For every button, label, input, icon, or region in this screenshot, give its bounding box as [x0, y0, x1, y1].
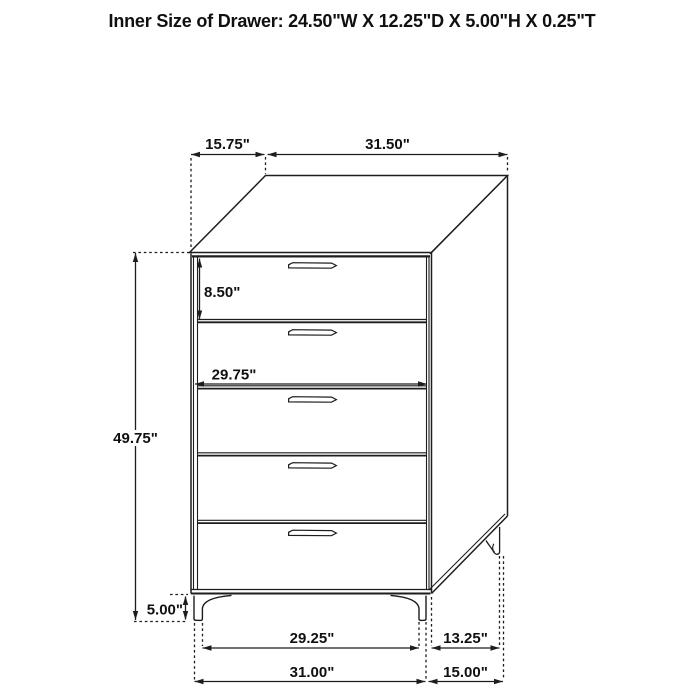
arrowhead	[183, 611, 188, 620]
arrowhead	[417, 679, 426, 684]
arrowhead	[195, 679, 204, 684]
drawer-dividers	[198, 320, 427, 524]
chest-top-face	[190, 176, 508, 253]
extension-lines	[133, 157, 508, 680]
dimension-leg-height: 5.00"	[147, 596, 189, 620]
arrowhead	[499, 152, 508, 157]
dimension-side-legs-span: 13.25"	[432, 630, 500, 651]
front-left-leg	[194, 595, 232, 620]
arrowhead	[183, 596, 188, 605]
arrowhead	[268, 152, 277, 157]
dim-label-overall-height: 49.75"	[113, 430, 158, 447]
dimension-base-side-depth: 15.00"	[429, 664, 504, 684]
arrowhead	[133, 253, 138, 262]
dimension-overall-height: 49.75"	[110, 253, 162, 620]
dim-label-top-depth: 15.75"	[205, 136, 250, 153]
arrowhead	[494, 679, 503, 684]
dimension-top-depth: 15.75"	[191, 136, 265, 157]
dimension-base-front-width: 31.00"	[195, 664, 426, 684]
arrowhead	[410, 645, 419, 650]
front-right-leg	[391, 595, 427, 620]
arrowhead	[203, 645, 212, 650]
drawer-handle	[289, 530, 337, 536]
dim-label-front-legs-span: 29.25"	[290, 630, 335, 647]
drawer-handle	[289, 263, 337, 269]
dim-label-top-width: 31.50"	[365, 136, 410, 153]
arrowhead	[256, 152, 265, 157]
arrowhead	[491, 645, 500, 650]
product-dimension-diagram: Inner Size of Drawer: 24.50"W X 12.25"D …	[0, 0, 700, 700]
dim-label-base-front-width: 31.00"	[290, 664, 335, 681]
drawer-handles	[289, 263, 337, 536]
page-title: Inner Size of Drawer: 24.50"W X 12.25"D …	[109, 11, 596, 31]
arrowhead	[191, 152, 200, 157]
chest-drawing	[190, 176, 508, 621]
dim-label-leg-height: 5.00"	[147, 602, 183, 619]
dim-label-side-legs-span: 13.25"	[443, 630, 488, 647]
dimension-top-width: 31.50"	[268, 136, 508, 157]
drawer-handle	[289, 463, 337, 469]
dimension-drawer-width: 29.75"	[195, 367, 427, 387]
arrowhead	[432, 645, 441, 650]
drawer-handle	[289, 330, 337, 336]
arrowhead	[133, 611, 138, 620]
chest-legs	[194, 527, 500, 620]
dim-label-base-side-depth: 15.00"	[443, 664, 488, 681]
chest-side-panel	[429, 176, 508, 594]
dimension-front-legs-span: 29.25"	[203, 630, 420, 651]
drawer-handle	[289, 397, 337, 403]
dim-label-drawer-width: 29.75"	[212, 367, 257, 384]
arrowhead	[429, 679, 438, 684]
dim-label-first-drawer-height: 8.50"	[204, 284, 240, 301]
back-right-leg-curl	[493, 544, 495, 552]
dimension-first-drawer-height: 8.50"	[197, 259, 241, 320]
dimension-diagram-canvas: Inner Size of Drawer: 24.50"W X 12.25"D …	[0, 0, 700, 700]
